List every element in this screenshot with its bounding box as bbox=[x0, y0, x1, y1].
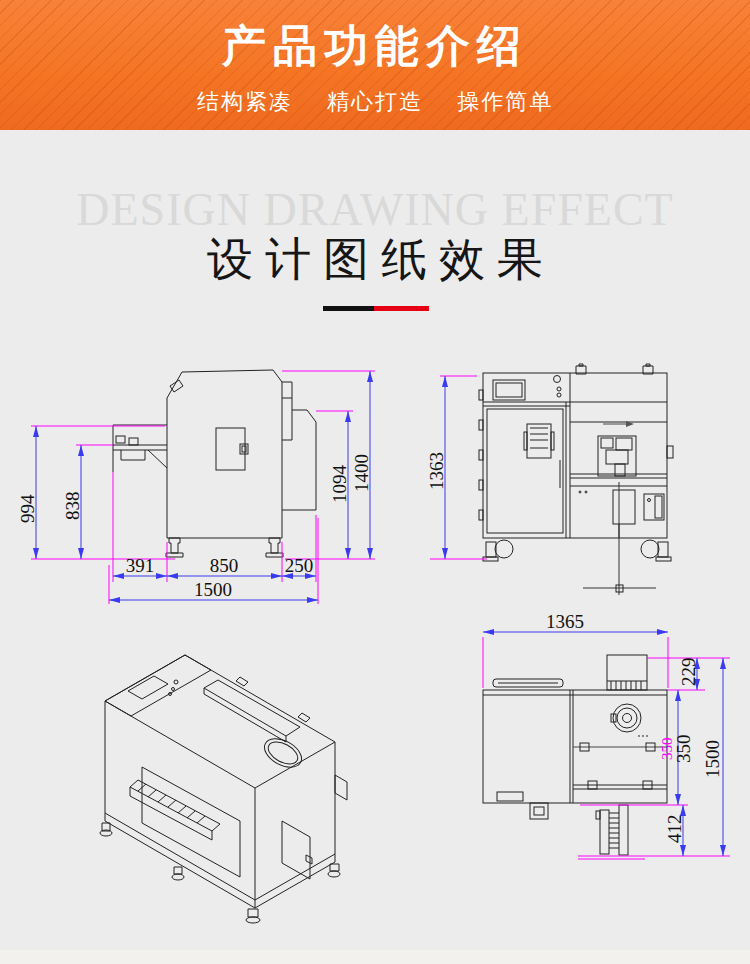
section-title: 设计图纸效果 bbox=[0, 229, 750, 291]
dim-label-1363: 1363 bbox=[426, 452, 447, 490]
dim-label-1400: 1400 bbox=[351, 454, 372, 492]
page: 产品功能介绍 结构紧凑 精心打造 操作简单 DESIGN DRAWING EFF… bbox=[0, 0, 750, 964]
dim-label-391: 391 bbox=[126, 555, 155, 576]
side-view-dimensions: 994 838 1094 1400 391 850 250 1500 bbox=[17, 371, 375, 604]
isometric-view-drawing bbox=[90, 625, 370, 945]
dim-label-250: 250 bbox=[285, 555, 314, 576]
dim-label-1500-bottom: 1500 bbox=[194, 579, 232, 600]
front-view-machine bbox=[479, 364, 673, 595]
subtitle-item: 精心打造 bbox=[327, 89, 423, 114]
subtitle-item: 操作简单 bbox=[457, 89, 553, 114]
top-view-dimensions: 1365 229 350 350 412 1500 bbox=[483, 611, 730, 859]
dim-label-1365: 1365 bbox=[546, 611, 584, 632]
divider bbox=[323, 306, 429, 311]
dim-label-350: 350 bbox=[673, 735, 694, 764]
dim-label-850: 850 bbox=[210, 555, 239, 576]
divider-black bbox=[323, 306, 374, 311]
header-banner: 产品功能介绍 结构紧凑 精心打造 操作简单 bbox=[0, 0, 750, 130]
dim-label-1094: 1094 bbox=[329, 465, 350, 504]
bottom-strip bbox=[0, 950, 750, 964]
front-view-dimensions: 1363 bbox=[426, 376, 487, 559]
top-view-machine bbox=[483, 655, 667, 855]
side-view-machine bbox=[113, 370, 316, 557]
dim-label-350-overlay: 350 bbox=[659, 738, 675, 761]
header-title: 产品功能介绍 bbox=[0, 22, 750, 70]
header-subtitle: 结构紧凑 精心打造 操作简单 bbox=[0, 87, 750, 117]
dim-label-994: 994 bbox=[17, 494, 38, 523]
divider-red bbox=[374, 306, 429, 311]
side-view-drawing: 994 838 1094 1400 391 850 250 1500 bbox=[15, 360, 375, 620]
dim-label-229: 229 bbox=[678, 658, 699, 687]
dim-label-1500-right: 1500 bbox=[702, 740, 723, 778]
isometric-machine bbox=[100, 655, 347, 923]
top-view-drawing: 1365 229 350 350 412 1500 bbox=[460, 615, 750, 880]
subtitle-item: 结构紧凑 bbox=[197, 89, 293, 114]
dim-label-412: 412 bbox=[664, 815, 685, 844]
front-view-drawing: 1363 bbox=[420, 362, 740, 602]
dim-label-838: 838 bbox=[62, 492, 83, 521]
